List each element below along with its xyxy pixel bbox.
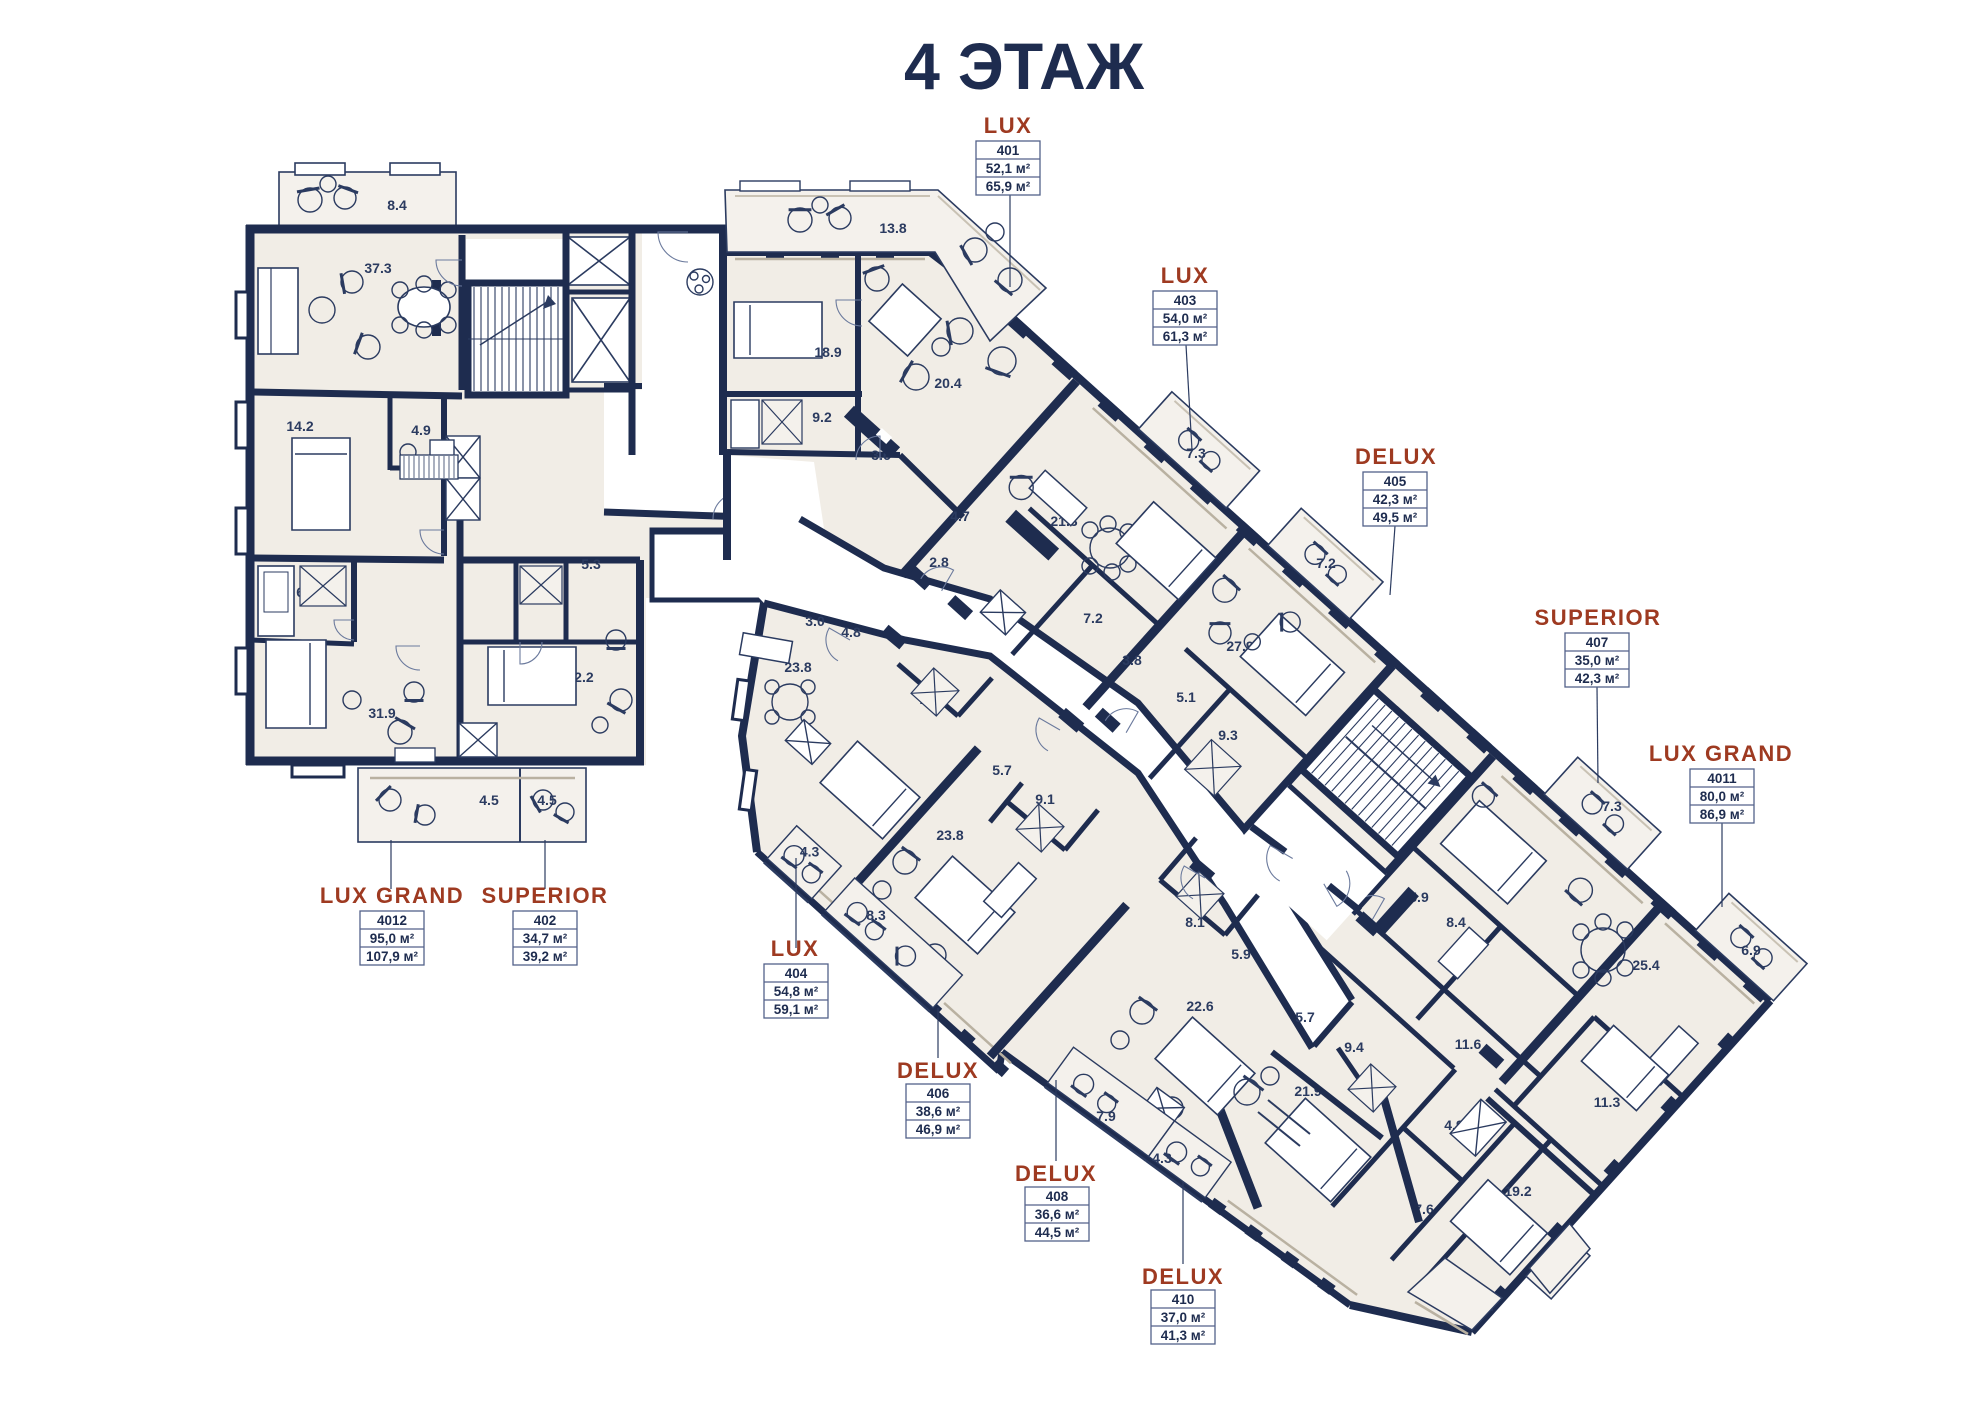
svg-text:80,0 м²: 80,0 м² bbox=[1700, 789, 1745, 804]
svg-text:8.4: 8.4 bbox=[1446, 914, 1466, 930]
svg-text:LUX: LUX bbox=[1161, 263, 1210, 288]
svg-text:20.4: 20.4 bbox=[934, 375, 961, 391]
svg-text:4.5: 4.5 bbox=[479, 792, 499, 808]
svg-text:38,6 м²: 38,6 м² bbox=[916, 1104, 961, 1119]
svg-text:35,0 м²: 35,0 м² bbox=[1575, 653, 1620, 668]
svg-text:5.3: 5.3 bbox=[581, 556, 601, 572]
svg-text:401: 401 bbox=[997, 143, 1020, 158]
svg-text:4011: 4011 bbox=[1707, 771, 1737, 786]
svg-text:4.3: 4.3 bbox=[800, 843, 820, 859]
svg-text:402: 402 bbox=[534, 913, 557, 928]
svg-text:9.4: 9.4 bbox=[1344, 1039, 1364, 1055]
svg-text:65,9 м²: 65,9 м² bbox=[986, 179, 1031, 194]
svg-text:4.8: 4.8 bbox=[841, 624, 861, 640]
svg-text:408: 408 bbox=[1046, 1189, 1069, 1204]
svg-text:11.6: 11.6 bbox=[1455, 1036, 1482, 1052]
svg-text:4.5: 4.5 bbox=[537, 792, 557, 808]
svg-text:4.7: 4.7 bbox=[950, 508, 970, 524]
svg-text:23.8: 23.8 bbox=[936, 827, 963, 843]
svg-text:4.9: 4.9 bbox=[411, 422, 431, 438]
svg-text:7.2: 7.2 bbox=[1083, 610, 1103, 626]
svg-text:7.9: 7.9 bbox=[1096, 1108, 1116, 1124]
svg-text:44,5 м²: 44,5 м² bbox=[1035, 1225, 1080, 1240]
svg-text:7.3: 7.3 bbox=[1186, 445, 1206, 461]
svg-text:406: 406 bbox=[927, 1086, 950, 1101]
svg-text:5.1: 5.1 bbox=[1176, 689, 1196, 705]
svg-text:34,7 м²: 34,7 м² bbox=[523, 931, 568, 946]
svg-text:39,2 м²: 39,2 м² bbox=[523, 949, 568, 964]
svg-text:8.4: 8.4 bbox=[387, 197, 407, 213]
svg-text:11.3: 11.3 bbox=[1594, 1094, 1621, 1110]
svg-text:407: 407 bbox=[1586, 635, 1609, 650]
svg-text:7.2: 7.2 bbox=[1316, 555, 1336, 571]
svg-text:54,8 м²: 54,8 м² bbox=[774, 984, 819, 999]
svg-text:4012: 4012 bbox=[377, 913, 407, 928]
svg-text:37,0 м²: 37,0 м² bbox=[1161, 1310, 1206, 1325]
svg-text:42,3 м²: 42,3 м² bbox=[1575, 671, 1620, 686]
svg-text:DELUX: DELUX bbox=[1355, 444, 1437, 469]
svg-text:7.3: 7.3 bbox=[1602, 798, 1622, 814]
svg-text:6.9: 6.9 bbox=[1741, 942, 1761, 958]
svg-text:42,3 м²: 42,3 м² bbox=[1373, 492, 1418, 507]
svg-text:95,0 м²: 95,0 м² bbox=[370, 931, 415, 946]
svg-text:LUX: LUX bbox=[984, 113, 1033, 138]
svg-text:14.2: 14.2 bbox=[286, 418, 313, 434]
svg-text:25.4: 25.4 bbox=[1632, 957, 1659, 973]
svg-text:9.3: 9.3 bbox=[1218, 727, 1238, 743]
svg-text:52,1 м²: 52,1 м² bbox=[986, 161, 1031, 176]
svg-text:18.9: 18.9 bbox=[814, 344, 841, 360]
svg-text:LUX GRAND: LUX GRAND bbox=[320, 883, 464, 908]
svg-text:SUPERIOR: SUPERIOR bbox=[1535, 605, 1662, 630]
svg-text:3.0: 3.0 bbox=[805, 613, 825, 629]
svg-text:8.3: 8.3 bbox=[866, 907, 886, 923]
svg-text:36,6 м²: 36,6 м² bbox=[1035, 1207, 1080, 1222]
svg-text:4 ЭТАЖ: 4 ЭТАЖ bbox=[904, 29, 1144, 103]
svg-text:5.9: 5.9 bbox=[1231, 946, 1251, 962]
svg-text:410: 410 bbox=[1172, 1292, 1195, 1307]
svg-text:86,9 м²: 86,9 м² bbox=[1700, 807, 1745, 822]
svg-text:107,9 м²: 107,9 м² bbox=[366, 949, 419, 964]
svg-text:41,3 м²: 41,3 м² bbox=[1161, 1328, 1206, 1343]
svg-text:SUPERIOR: SUPERIOR bbox=[482, 883, 609, 908]
svg-text:5.7: 5.7 bbox=[992, 762, 1012, 778]
svg-text:13.8: 13.8 bbox=[879, 220, 906, 236]
svg-text:DELUX: DELUX bbox=[1015, 1161, 1097, 1186]
svg-text:DELUX: DELUX bbox=[1142, 1264, 1224, 1289]
svg-text:37.3: 37.3 bbox=[364, 260, 391, 276]
svg-text:59,1 м²: 59,1 м² bbox=[774, 1002, 819, 1017]
svg-text:LUX GRAND: LUX GRAND bbox=[1649, 741, 1793, 766]
svg-text:9.2: 9.2 bbox=[812, 409, 832, 425]
svg-text:LUX: LUX bbox=[771, 936, 820, 961]
svg-text:54,0 м²: 54,0 м² bbox=[1163, 311, 1208, 326]
svg-text:405: 405 bbox=[1384, 474, 1407, 489]
svg-text:DELUX: DELUX bbox=[897, 1058, 979, 1083]
svg-text:404: 404 bbox=[785, 966, 808, 981]
svg-text:3.8: 3.8 bbox=[1122, 652, 1142, 668]
svg-text:31.9: 31.9 bbox=[368, 705, 395, 721]
svg-text:49,5 м²: 49,5 м² bbox=[1373, 510, 1418, 525]
svg-text:4.3: 4.3 bbox=[1152, 1150, 1172, 1166]
svg-text:61,3 м²: 61,3 м² bbox=[1163, 329, 1208, 344]
svg-text:19.2: 19.2 bbox=[1504, 1183, 1531, 1199]
svg-text:5.7: 5.7 bbox=[1295, 1009, 1315, 1025]
svg-text:46,9 м²: 46,9 м² bbox=[916, 1122, 961, 1137]
svg-text:22.6: 22.6 bbox=[1186, 998, 1213, 1014]
svg-text:403: 403 bbox=[1174, 293, 1197, 308]
